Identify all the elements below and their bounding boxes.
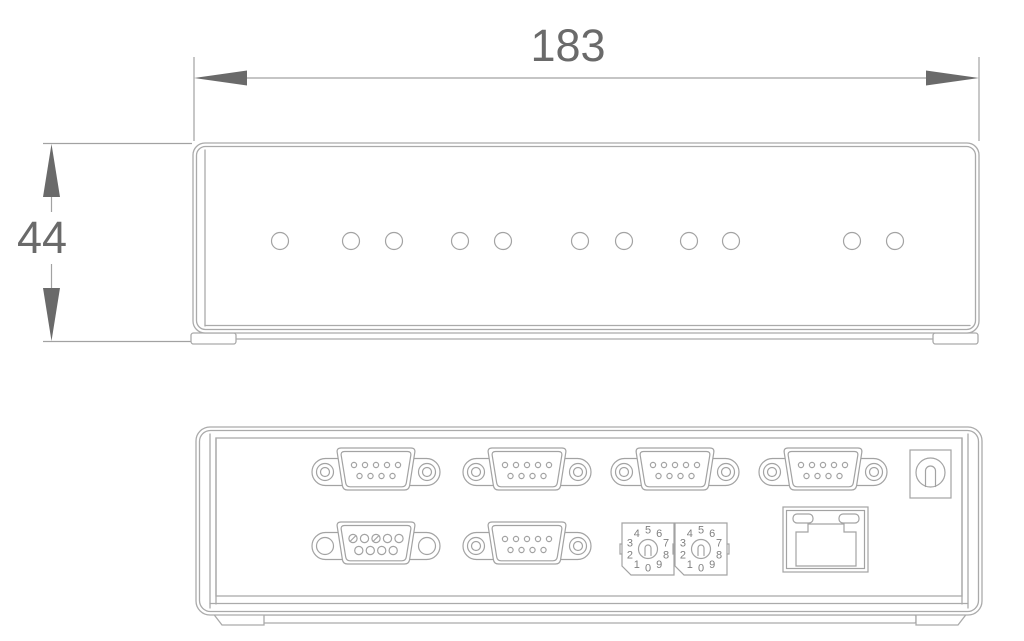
rotary-switch-1-digit-6: 6 [656,528,662,540]
rear-panel-view: 01234567890123456789 [196,427,982,625]
width-dimension-label: 183 [530,20,605,71]
rotary-switch-2-digit-0: 0 [698,563,704,575]
rotary-switch-2-digit-2: 2 [680,549,686,561]
width-dimension: 183 [194,20,979,141]
led-indicator-10 [844,233,861,250]
arrowhead-right-icon [926,71,979,86]
led-indicator-7 [616,233,633,250]
device-dimension-drawing: 183 44 [0,0,1024,641]
led-indicator-3 [386,233,403,250]
rear-foot-bar [262,615,916,623]
rotary-switch-1-digit-3: 3 [627,538,633,550]
arrowhead-up-icon [43,144,60,197]
height-dimension: 44 [17,144,195,342]
front-foot-left [191,333,236,344]
rotary-switch-2-digit-6: 6 [709,528,715,540]
rotary-switch-2-digit-8: 8 [716,549,722,561]
rotary-switch-1-digit-8: 8 [663,549,669,561]
led-indicator-4 [452,233,469,250]
led-indicator-1 [272,233,289,250]
power-jack [910,450,951,498]
ethernet-port [783,507,868,572]
rotary-switch-1-digit-1: 1 [634,559,640,571]
arrowhead-down-icon [43,288,60,341]
rotary-switch-2-digit-4: 4 [687,528,693,540]
rotary-switch-1-digit-2: 2 [627,549,633,561]
rotary-switch-2-digit-7: 7 [716,538,722,550]
rotary-switch-1-digit-5: 5 [645,525,651,537]
rotary-switch-2-digit-3: 3 [680,538,686,550]
led-indicator-6 [572,233,589,250]
rotary-switch-1-digit-4: 4 [634,528,640,540]
rotary-switch-1-digit-7: 7 [663,538,669,550]
led-indicator-5 [495,233,512,250]
led-indicator-8 [681,233,698,250]
rotary-switch-1-digit-9: 9 [656,559,662,571]
rotary-switch-2-digit-1: 1 [687,559,693,571]
front-panel-view [191,143,979,344]
rotary-switch-1-digit-0: 0 [645,563,651,575]
led-indicator-9 [723,233,740,250]
front-foot-right [933,333,978,344]
led-indicator-11 [887,233,904,250]
rotary-switch-2-digit-9: 9 [709,559,715,571]
height-dimension-label: 44 [17,212,67,263]
arrowhead-left-icon [194,71,247,86]
led-indicator-2 [343,233,360,250]
rotary-switch-2-digit-5: 5 [698,525,704,537]
